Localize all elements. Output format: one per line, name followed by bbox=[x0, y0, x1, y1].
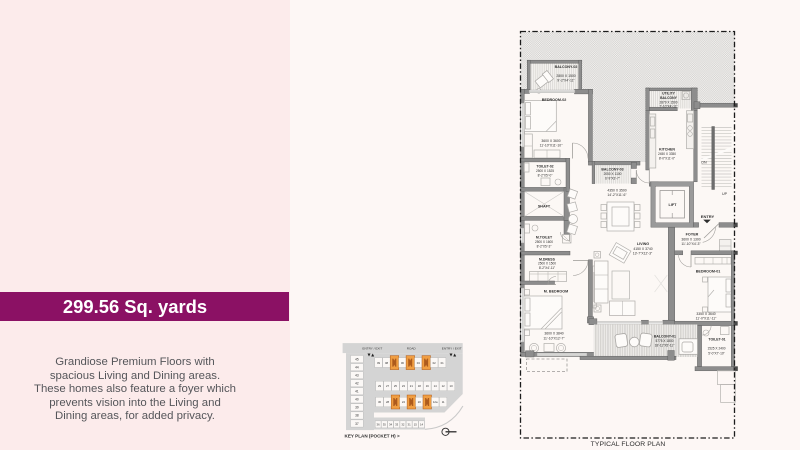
svg-text:11'-10"X4'-3": 11'-10"X4'-3" bbox=[681, 242, 701, 246]
svg-text:ROAD: ROAD bbox=[407, 346, 417, 350]
svg-text:TOILET-02: TOILET-02 bbox=[536, 165, 553, 169]
svg-text:36: 36 bbox=[377, 423, 381, 427]
svg-text:5775 X 1800: 5775 X 1800 bbox=[655, 339, 673, 343]
svg-text:1525 X 2400: 1525 X 2400 bbox=[707, 347, 725, 351]
svg-text:37: 37 bbox=[355, 422, 359, 426]
svg-text:42: 42 bbox=[355, 382, 359, 386]
svg-text:8'-2"X4'-11": 8'-2"X4'-11" bbox=[539, 266, 555, 270]
svg-text:11: 11 bbox=[442, 400, 445, 404]
svg-text:01: 01 bbox=[441, 361, 445, 365]
svg-text:BEDROOM-02: BEDROOM-02 bbox=[542, 98, 567, 102]
svg-text:08: 08 bbox=[385, 361, 389, 365]
svg-text:3600 X 3840: 3600 X 3840 bbox=[544, 332, 563, 336]
svg-text:7'-10"X4'-11": 7'-10"X4'-11" bbox=[659, 105, 677, 109]
svg-text:3600 X 1300: 3600 X 1300 bbox=[681, 237, 700, 241]
svg-text:M. BEDROOM: M. BEDROOM bbox=[544, 289, 568, 293]
svg-text:SHAFT: SHAFT bbox=[538, 204, 551, 208]
svg-text:21: 21 bbox=[410, 384, 414, 388]
svg-text:20: 20 bbox=[418, 400, 422, 404]
svg-text:31: 31 bbox=[408, 423, 412, 427]
svg-text:44: 44 bbox=[355, 365, 359, 369]
svg-text:02: 02 bbox=[433, 361, 437, 365]
svg-text:15: 15 bbox=[414, 423, 418, 427]
svg-text:9'-2"X4'-11": 9'-2"X4'-11" bbox=[557, 79, 575, 83]
svg-text:UP: UP bbox=[722, 192, 728, 196]
svg-text:38: 38 bbox=[355, 414, 359, 418]
svg-text:8'-2"X5'-3": 8'-2"X5'-3" bbox=[537, 244, 552, 248]
svg-text:43: 43 bbox=[355, 374, 359, 378]
svg-text:12: 12 bbox=[442, 384, 446, 388]
svg-text:ENTRY / EXIT: ENTRY / EXIT bbox=[362, 346, 382, 350]
svg-text:8'-2"X5'-0": 8'-2"X5'-0" bbox=[538, 173, 553, 177]
svg-text:14: 14 bbox=[420, 423, 424, 427]
svg-text:8'-0"X11'-0": 8'-0"X11'-0" bbox=[659, 157, 675, 161]
svg-text:18'-11"X5'-11": 18'-11"X5'-11" bbox=[655, 344, 675, 348]
svg-text:M.TOILET: M.TOILET bbox=[536, 236, 553, 240]
svg-text:KITCHEN: KITCHEN bbox=[659, 148, 675, 152]
svg-text:33: 33 bbox=[395, 423, 399, 427]
svg-text:14'-2"X11'-6": 14'-2"X11'-6" bbox=[607, 193, 627, 197]
svg-text:2500 X 1525: 2500 X 1525 bbox=[536, 169, 554, 173]
svg-text:12a: 12a bbox=[433, 400, 438, 404]
svg-text:35: 35 bbox=[383, 423, 387, 427]
svg-text:11'-10"X12'-7": 11'-10"X12'-7" bbox=[543, 336, 565, 340]
svg-text:39: 39 bbox=[355, 406, 359, 410]
svg-text:5'-0"X7'-10": 5'-0"X7'-10" bbox=[708, 351, 725, 355]
svg-text:10: 10 bbox=[450, 384, 454, 388]
svg-text:11'-0"X11'-11": 11'-0"X11'-11" bbox=[696, 317, 717, 321]
svg-text:4150 X 3740: 4150 X 3740 bbox=[633, 247, 652, 251]
svg-text:ENTRY / EXIT: ENTRY / EXIT bbox=[442, 346, 462, 350]
svg-text:TOILET-01: TOILET-01 bbox=[708, 338, 725, 342]
svg-text:24: 24 bbox=[402, 400, 406, 404]
svg-text:06: 06 bbox=[401, 361, 405, 365]
svg-text:LIFT: LIFT bbox=[668, 203, 677, 207]
svg-text:2500 X 1500: 2500 X 1500 bbox=[538, 262, 556, 266]
svg-text:11'-10"X11'-10": 11'-10"X11'-10" bbox=[540, 144, 564, 148]
svg-text:BALCONY-02: BALCONY-02 bbox=[555, 65, 578, 69]
svg-text:3350 X 3640: 3350 X 3640 bbox=[696, 312, 715, 316]
svg-text:14: 14 bbox=[434, 384, 438, 388]
svg-text:LIVING: LIVING bbox=[637, 242, 649, 246]
svg-text:34: 34 bbox=[389, 423, 393, 427]
svg-text:ENTRY: ENTRY bbox=[701, 214, 715, 219]
svg-text:DN: DN bbox=[701, 160, 707, 164]
svg-text:09: 09 bbox=[377, 361, 381, 365]
svg-text:M.DRESS: M.DRESS bbox=[539, 257, 556, 261]
svg-text:TYPICAL FLOOR PLAN: TYPICAL FLOOR PLAN bbox=[591, 441, 666, 448]
svg-text:3600 X 3600: 3600 X 3600 bbox=[541, 139, 560, 143]
svg-text:BALCONY: BALCONY bbox=[660, 96, 678, 100]
svg-text:27: 27 bbox=[386, 384, 390, 388]
svg-text:32: 32 bbox=[401, 423, 405, 427]
svg-text:30: 30 bbox=[378, 400, 382, 404]
svg-text:2800 X 1500: 2800 X 1500 bbox=[556, 74, 575, 78]
svg-text:BEDROOM-01: BEDROOM-01 bbox=[696, 270, 721, 274]
svg-text:41: 41 bbox=[355, 390, 359, 394]
svg-text:2450 X 3350: 2450 X 3350 bbox=[658, 152, 676, 156]
svg-text:BALCONY-01: BALCONY-01 bbox=[654, 334, 676, 338]
svg-text:2500 X 1600: 2500 X 1600 bbox=[535, 240, 553, 244]
svg-text:40: 40 bbox=[355, 398, 359, 402]
svg-text:KEY PLAN (POCKET H) >: KEY PLAN (POCKET H) > bbox=[345, 434, 400, 439]
svg-text:2879 X 1500: 2879 X 1500 bbox=[659, 100, 677, 104]
svg-text:4350 X 3500: 4350 X 3500 bbox=[607, 188, 626, 192]
svg-text:45: 45 bbox=[355, 357, 359, 361]
svg-text:28: 28 bbox=[386, 400, 390, 404]
svg-text:04: 04 bbox=[417, 361, 421, 365]
svg-text:13'-7"X12'-3": 13'-7"X12'-3" bbox=[633, 251, 653, 255]
svg-text:25: 25 bbox=[394, 384, 398, 388]
svg-text:23: 23 bbox=[402, 384, 406, 388]
svg-text:16: 16 bbox=[426, 384, 430, 388]
svg-text:UTILITY: UTILITY bbox=[662, 91, 676, 95]
svg-text:18: 18 bbox=[418, 384, 422, 388]
svg-text:FOYER: FOYER bbox=[686, 233, 699, 237]
svg-text:6'-9"X3'-7": 6'-9"X3'-7" bbox=[605, 176, 620, 180]
svg-text:29: 29 bbox=[378, 384, 382, 388]
